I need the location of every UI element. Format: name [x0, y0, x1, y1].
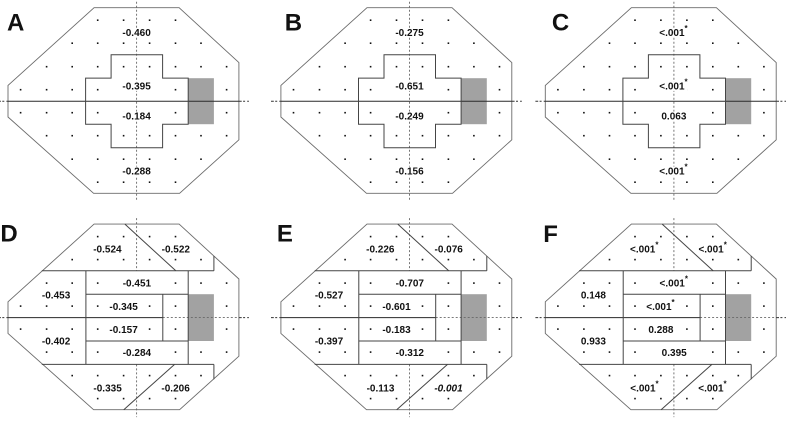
svg-text:-0.395: -0.395: [122, 82, 151, 93]
svg-text:<.001: <.001: [659, 167, 685, 178]
svg-text:0.063: 0.063: [661, 112, 686, 123]
svg-text:0.395: 0.395: [662, 348, 687, 359]
svg-text:<.001: <.001: [630, 244, 656, 255]
svg-text:0.933: 0.933: [581, 336, 606, 347]
svg-text:-0.288: -0.288: [122, 167, 151, 178]
svg-text:-0.275: -0.275: [395, 28, 424, 39]
svg-text:-0.157: -0.157: [109, 325, 138, 336]
svg-text:<.001: <.001: [630, 384, 656, 395]
svg-text:-0.206: -0.206: [161, 384, 190, 395]
svg-text:-0.451: -0.451: [123, 278, 152, 289]
svg-text:<.001: <.001: [646, 302, 672, 313]
svg-text:-0.601: -0.601: [382, 302, 411, 313]
svg-text:-0.345: -0.345: [109, 302, 138, 313]
svg-text:-0.522: -0.522: [162, 244, 191, 255]
svg-text:C: C: [552, 9, 569, 36]
svg-text:-0.524: -0.524: [93, 244, 122, 255]
svg-text:-0.184: -0.184: [122, 112, 151, 123]
svg-text:F: F: [543, 221, 558, 248]
svg-text:-0.183: -0.183: [382, 325, 411, 336]
svg-text:-0.527: -0.527: [315, 290, 344, 301]
svg-text:0.288: 0.288: [648, 325, 673, 336]
svg-text:-0.249: -0.249: [395, 112, 424, 123]
svg-text:-0.460: -0.460: [122, 28, 151, 39]
svg-text:-0.651: -0.651: [395, 82, 424, 93]
svg-text:<.001: <.001: [698, 384, 724, 395]
svg-text:-0.402: -0.402: [42, 336, 71, 347]
svg-text:-0.335: -0.335: [93, 384, 122, 395]
svg-text:-0.113: -0.113: [367, 384, 395, 395]
svg-text:<.001: <.001: [659, 82, 685, 93]
svg-text:0.148: 0.148: [581, 290, 606, 301]
svg-text:-0.707: -0.707: [396, 278, 425, 289]
svg-text:-0.156: -0.156: [395, 167, 424, 178]
svg-text:-0.001: -0.001: [434, 384, 463, 395]
svg-text:-0.226: -0.226: [366, 244, 395, 255]
svg-text:-0.453: -0.453: [42, 290, 71, 301]
svg-text:-0.397: -0.397: [315, 336, 344, 347]
svg-text:E: E: [277, 221, 293, 248]
svg-text:-0.284: -0.284: [123, 348, 152, 359]
svg-text:-0.076: -0.076: [435, 244, 464, 255]
svg-text:-0.312: -0.312: [396, 348, 425, 359]
svg-text:<.001: <.001: [659, 28, 685, 39]
svg-text:<.001: <.001: [698, 244, 724, 255]
svg-text:B: B: [285, 10, 302, 37]
svg-text:<.001: <.001: [660, 278, 686, 289]
svg-text:D: D: [0, 221, 17, 248]
svg-text:A: A: [7, 10, 24, 37]
